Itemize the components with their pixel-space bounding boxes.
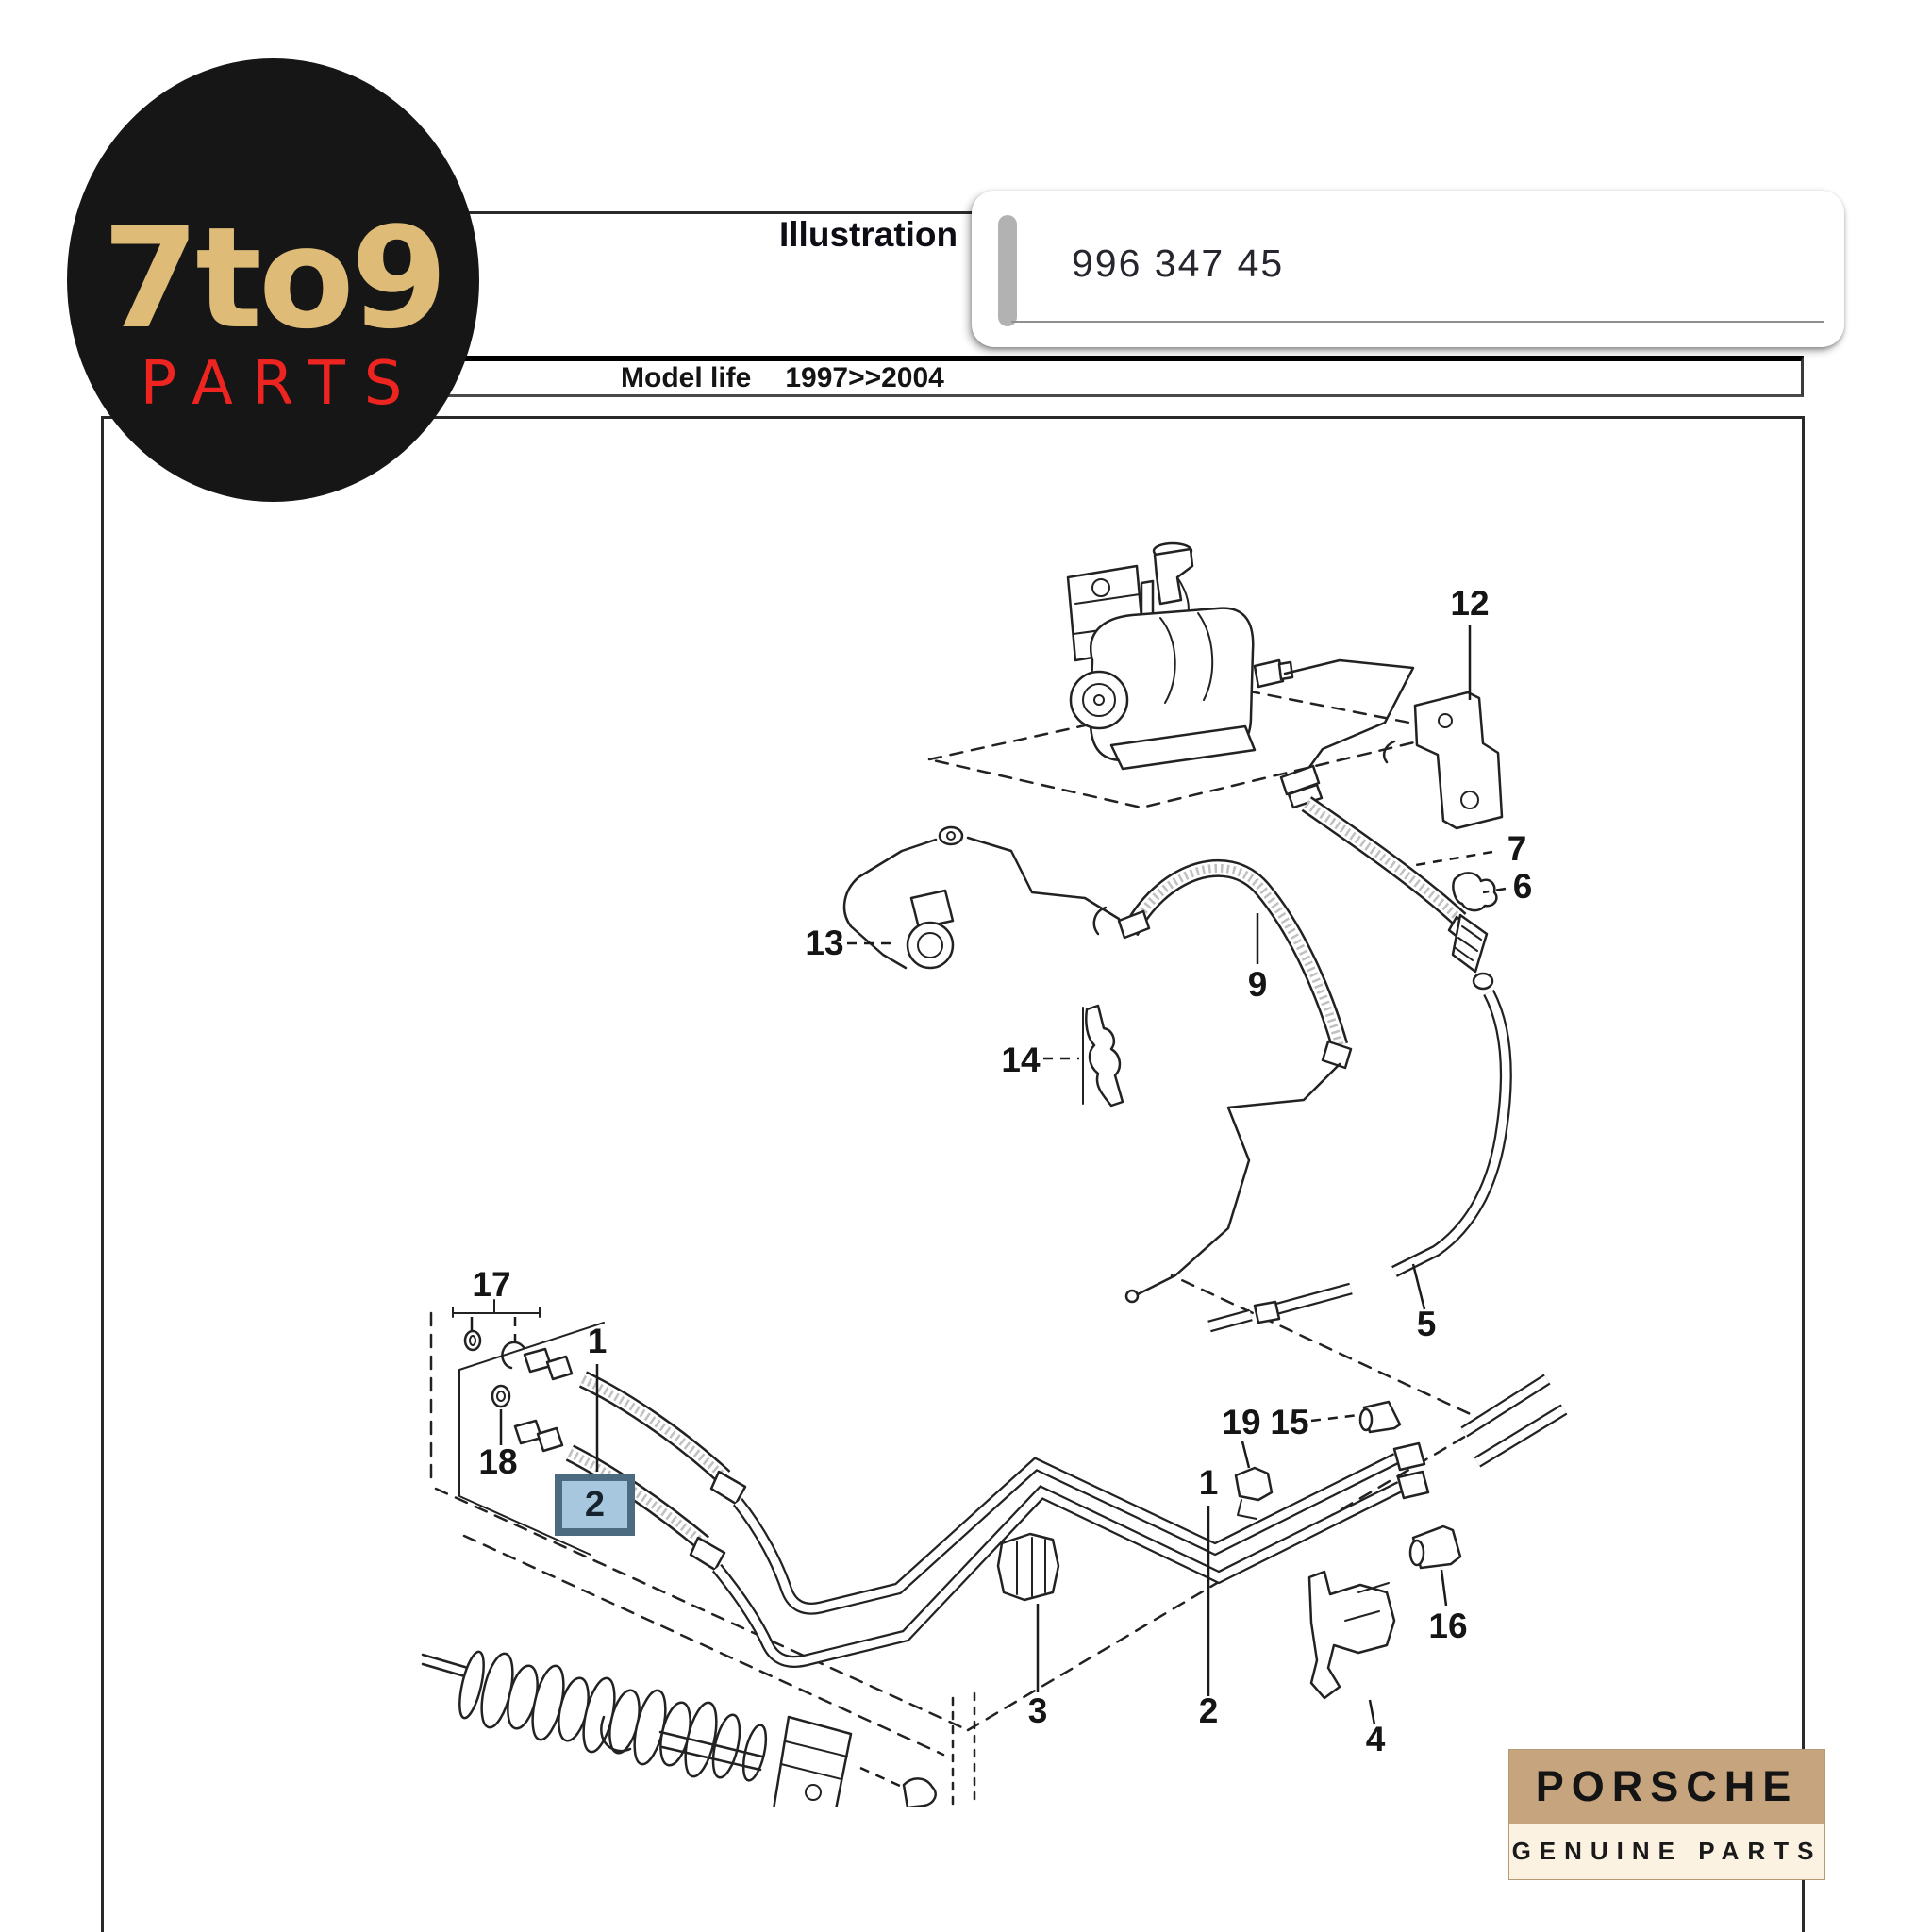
popup-scrollbar-thumb[interactable] (998, 215, 1017, 326)
callout-label-2[interactable]: 2 (1199, 1691, 1219, 1730)
part-number-underline (1011, 321, 1824, 323)
porsche-genuine-parts-badge: PORSCHE GENUINE PARTS (1509, 1750, 1824, 1879)
callout-label-9[interactable]: 9 (1248, 965, 1268, 1004)
callout-label-4[interactable]: 4 (1366, 1720, 1386, 1758)
clamp-3-bracket-4 (998, 1534, 1394, 1698)
part-number-value: 996 347 45 (1072, 241, 1284, 286)
callout-label-17[interactable]: 17 (472, 1265, 510, 1304)
callout-label-6[interactable]: 6 (1513, 867, 1533, 906)
callout-label-3[interactable]: 3 (1028, 1691, 1048, 1730)
union-and-pipe-5 (1209, 873, 1506, 1326)
callout-label-12[interactable]: 12 (1450, 584, 1489, 623)
callout-label-15[interactable]: 15 (1270, 1403, 1308, 1441)
badge-subtitle: GENUINE PARTS (1509, 1824, 1824, 1879)
7to9-parts-logo: 7to9 PARTS (67, 58, 479, 502)
suction-line-and-clamps (844, 827, 1123, 1106)
logo-subtitle: PARTS (141, 354, 422, 414)
parts-catalog-page: Illustration Model life 1997>>2004 (0, 0, 1932, 1932)
logo-wordmark: 7to9 (102, 208, 443, 348)
callout-label-16[interactable]: 16 (1428, 1607, 1467, 1645)
callout-label-18[interactable]: 18 (478, 1442, 517, 1481)
power-steering-pump (1068, 543, 1292, 769)
highlighted-callout-2[interactable]: 2 (555, 1474, 635, 1536)
callout-label-7[interactable]: 7 (1507, 829, 1527, 868)
callout-label-13[interactable]: 13 (805, 924, 843, 962)
steering-rack (423, 1650, 936, 1809)
bracket-12 (1384, 692, 1502, 828)
badge-brand: PORSCHE (1509, 1750, 1824, 1824)
return-hose-9 (1094, 868, 1351, 1302)
return-line-2 (515, 1421, 1428, 1661)
callout-label-19[interactable]: 19 (1222, 1403, 1260, 1441)
callout-label-14[interactable]: 14 (1001, 1041, 1041, 1079)
callout-label-1[interactable]: 1 (588, 1322, 608, 1360)
callout-label-5[interactable]: 5 (1417, 1305, 1437, 1343)
part-number-popup: 996 347 45 (972, 191, 1844, 347)
callout-label-1[interactable]: 1 (1199, 1463, 1219, 1502)
